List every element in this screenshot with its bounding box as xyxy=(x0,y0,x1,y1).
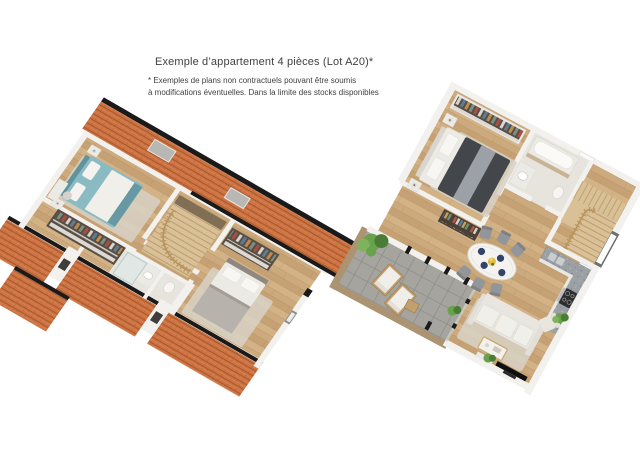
upper-floor-plan xyxy=(0,92,367,439)
screenshot-canvas: { "header": { "title": "Exemple d’appart… xyxy=(0,0,640,470)
disclaimer-line-1: * Exemples de plans non contractuels pou… xyxy=(148,76,356,85)
floor-plans-illustration xyxy=(0,0,640,470)
main-floor-plan xyxy=(329,77,640,396)
disclaimer-line-2: à modifications éventuelles. Dans la lim… xyxy=(148,88,379,97)
page-title: Exemple d’appartement 4 pièces (Lot A20)… xyxy=(155,56,373,68)
